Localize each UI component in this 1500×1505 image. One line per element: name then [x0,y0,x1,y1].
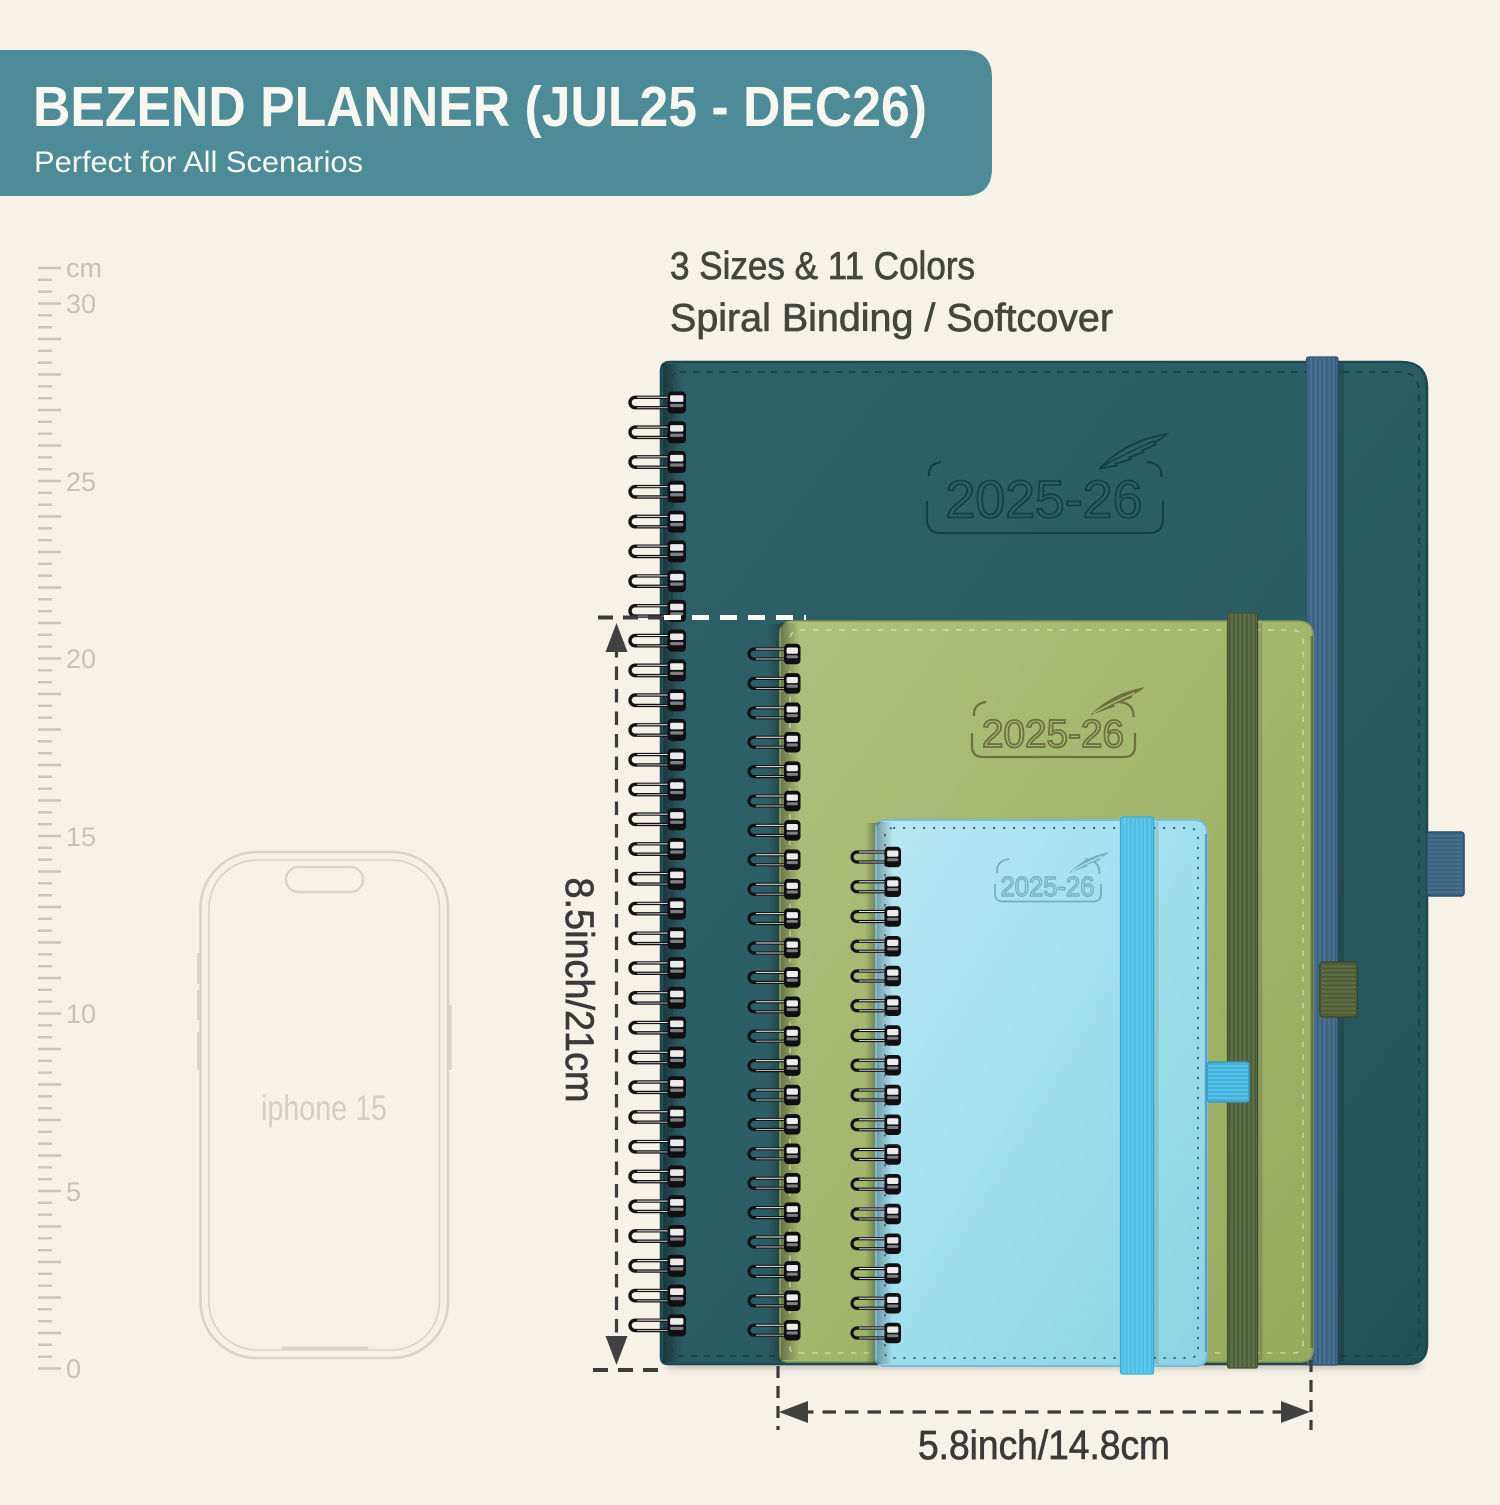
svg-text:5: 5 [66,1177,81,1207]
svg-text:2025-26: 2025-26 [982,713,1124,756]
svg-text:0: 0 [66,1354,81,1384]
svg-text:15: 15 [66,822,96,852]
svg-text:iphone 15: iphone 15 [261,1089,387,1128]
svg-text:25: 25 [66,467,96,497]
svg-text:3 Sizes & 11 Colors: 3 Sizes & 11 Colors [670,245,975,288]
svg-text:Perfect for All Scenarios: Perfect for All Scenarios [34,146,363,179]
svg-text:BEZEND PLANNER (JUL25 - DEC26): BEZEND PLANNER (JUL25 - DEC26) [33,75,927,139]
svg-text:Spiral Binding / Softcover: Spiral Binding / Softcover [670,297,1113,340]
svg-text:30: 30 [66,289,96,319]
svg-text:8.5inch/21cm: 8.5inch/21cm [557,878,601,1103]
svg-text:20: 20 [66,644,96,674]
svg-text:2025-26: 2025-26 [1001,871,1095,902]
svg-text:cm: cm [66,253,102,283]
svg-text:5.8inch/14.8cm: 5.8inch/14.8cm [918,1422,1170,1468]
svg-text:2025-26: 2025-26 [946,471,1143,530]
svg-text:10: 10 [66,999,96,1029]
